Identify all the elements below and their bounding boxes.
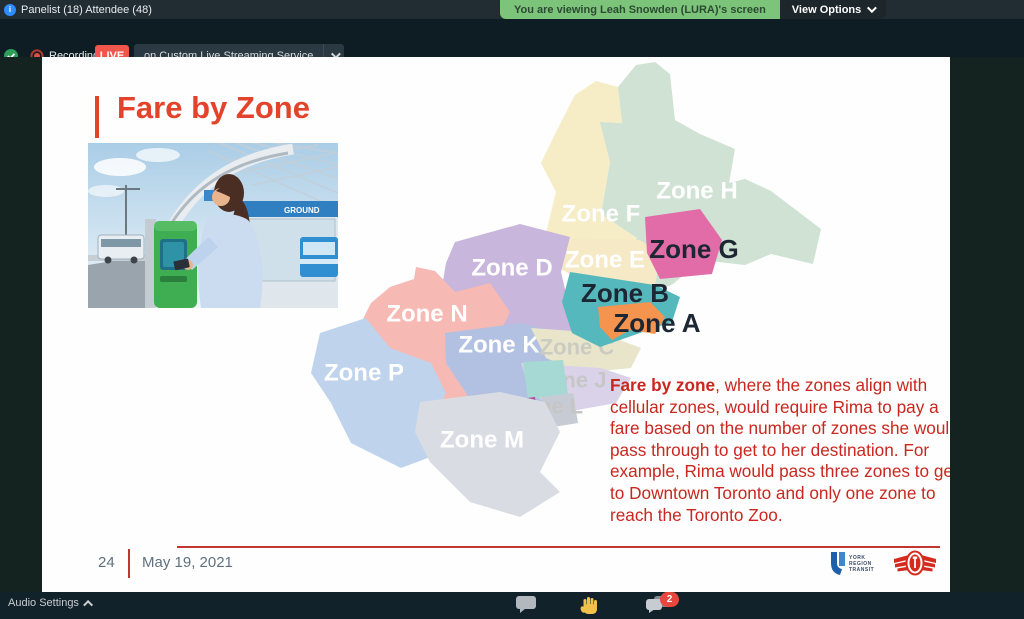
zone-label-D: Zone D bbox=[471, 254, 552, 281]
yrt-text-line: TRANSIT bbox=[849, 567, 874, 573]
chevron-up-icon bbox=[83, 599, 93, 609]
participants-count-label: Panelist (18) Attendee (48) bbox=[21, 4, 152, 16]
audio-settings-button[interactable]: Audio Settings bbox=[8, 597, 93, 609]
view-options-label: View Options bbox=[792, 4, 861, 16]
zone-label-F: Zone F bbox=[562, 200, 641, 227]
chevron-down-icon bbox=[867, 3, 877, 13]
chat-button[interactable] bbox=[515, 595, 537, 614]
title-accent-bar bbox=[95, 96, 99, 138]
chat-threads-button[interactable]: 2 bbox=[645, 595, 677, 615]
body-lead: Fare by zone bbox=[610, 375, 715, 395]
footer-divider bbox=[128, 549, 130, 578]
zone-label-E: Zone E bbox=[565, 246, 645, 273]
view-options-button[interactable]: View Options bbox=[780, 0, 886, 19]
page-number: 24 bbox=[98, 554, 115, 571]
zone-A: Zone A bbox=[598, 302, 701, 340]
raise-hand-button[interactable] bbox=[579, 595, 600, 616]
footer-accent-line bbox=[177, 546, 940, 548]
zone-label-A: Zone A bbox=[613, 308, 700, 338]
zone-M: Zone M bbox=[415, 392, 560, 517]
shared-screen-stage: Fare by Zone bbox=[0, 57, 1024, 592]
zone-label-K: Zone K bbox=[458, 331, 540, 358]
recording-status-bar: Recording LIVE on Custom Live Streaming … bbox=[0, 19, 1024, 57]
screen-share-banner: You are viewing Leah Snowden (LURA)'s sc… bbox=[500, 0, 780, 19]
yrt-mark-icon bbox=[830, 552, 845, 576]
chat-unread-badge: 2 bbox=[660, 592, 679, 607]
york-region-transit-logo: YORK REGION TRANSIT bbox=[830, 552, 874, 576]
zone-label-G: Zone G bbox=[649, 234, 739, 264]
zone-region-M bbox=[415, 392, 560, 517]
zone-label-B: Zone B bbox=[581, 278, 669, 308]
ttc-logo bbox=[892, 549, 938, 577]
slide-title: Fare by Zone bbox=[117, 90, 310, 126]
zone-label-H: Zone H bbox=[656, 177, 737, 204]
audio-settings-label: Audio Settings bbox=[8, 597, 79, 609]
slide-date: May 19, 2021 bbox=[142, 554, 233, 571]
body-text: Fare by zone, where the zones align with… bbox=[610, 375, 950, 526]
meeting-bottom-bar: Audio Settings 2 bbox=[0, 592, 1024, 619]
meeting-info-icon[interactable]: i bbox=[4, 4, 16, 16]
zone-label-P: Zone P bbox=[324, 359, 404, 386]
zone-label-M: Zone M bbox=[440, 426, 524, 453]
presentation-slide: Fare by Zone bbox=[42, 57, 950, 592]
meeting-top-bar: i Panelist (18) Attendee (48) You are vi… bbox=[0, 0, 1024, 19]
body-rest: , where the zones align with cellular zo… bbox=[610, 375, 950, 525]
zone-label-N: Zone N bbox=[386, 300, 467, 327]
